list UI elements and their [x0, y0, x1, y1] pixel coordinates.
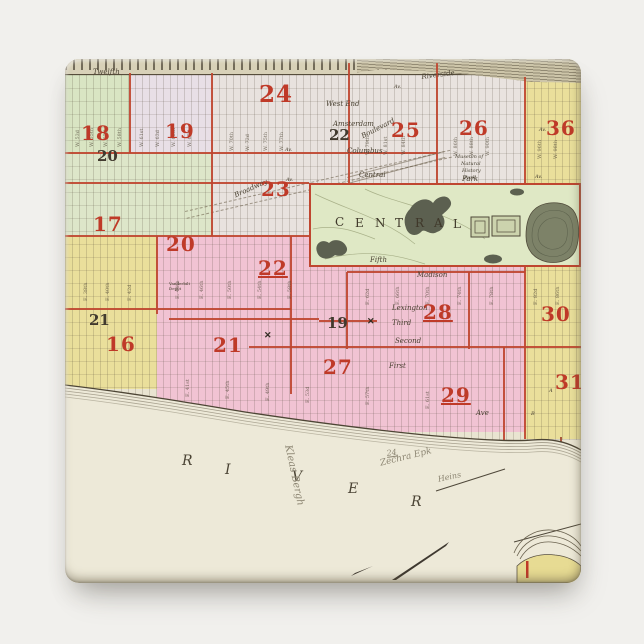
map-face: W. 53dW. 55thW. 57thW. 58thW. 61stW. 63d…	[65, 59, 581, 583]
x-marks: ✕✕	[65, 59, 581, 583]
depot-micro-text: Vanderbilt Depot	[169, 281, 223, 291]
depot-micro-line: Depot	[169, 286, 223, 291]
photo-background: W. 53dW. 55thW. 57thW. 58thW. 61stW. 63d…	[0, 0, 644, 644]
map-magnet: W. 53dW. 55thW. 57thW. 58thW. 61stW. 63d…	[65, 59, 581, 583]
x-mark: ✕	[367, 317, 375, 327]
x-mark: ✕	[264, 331, 272, 341]
